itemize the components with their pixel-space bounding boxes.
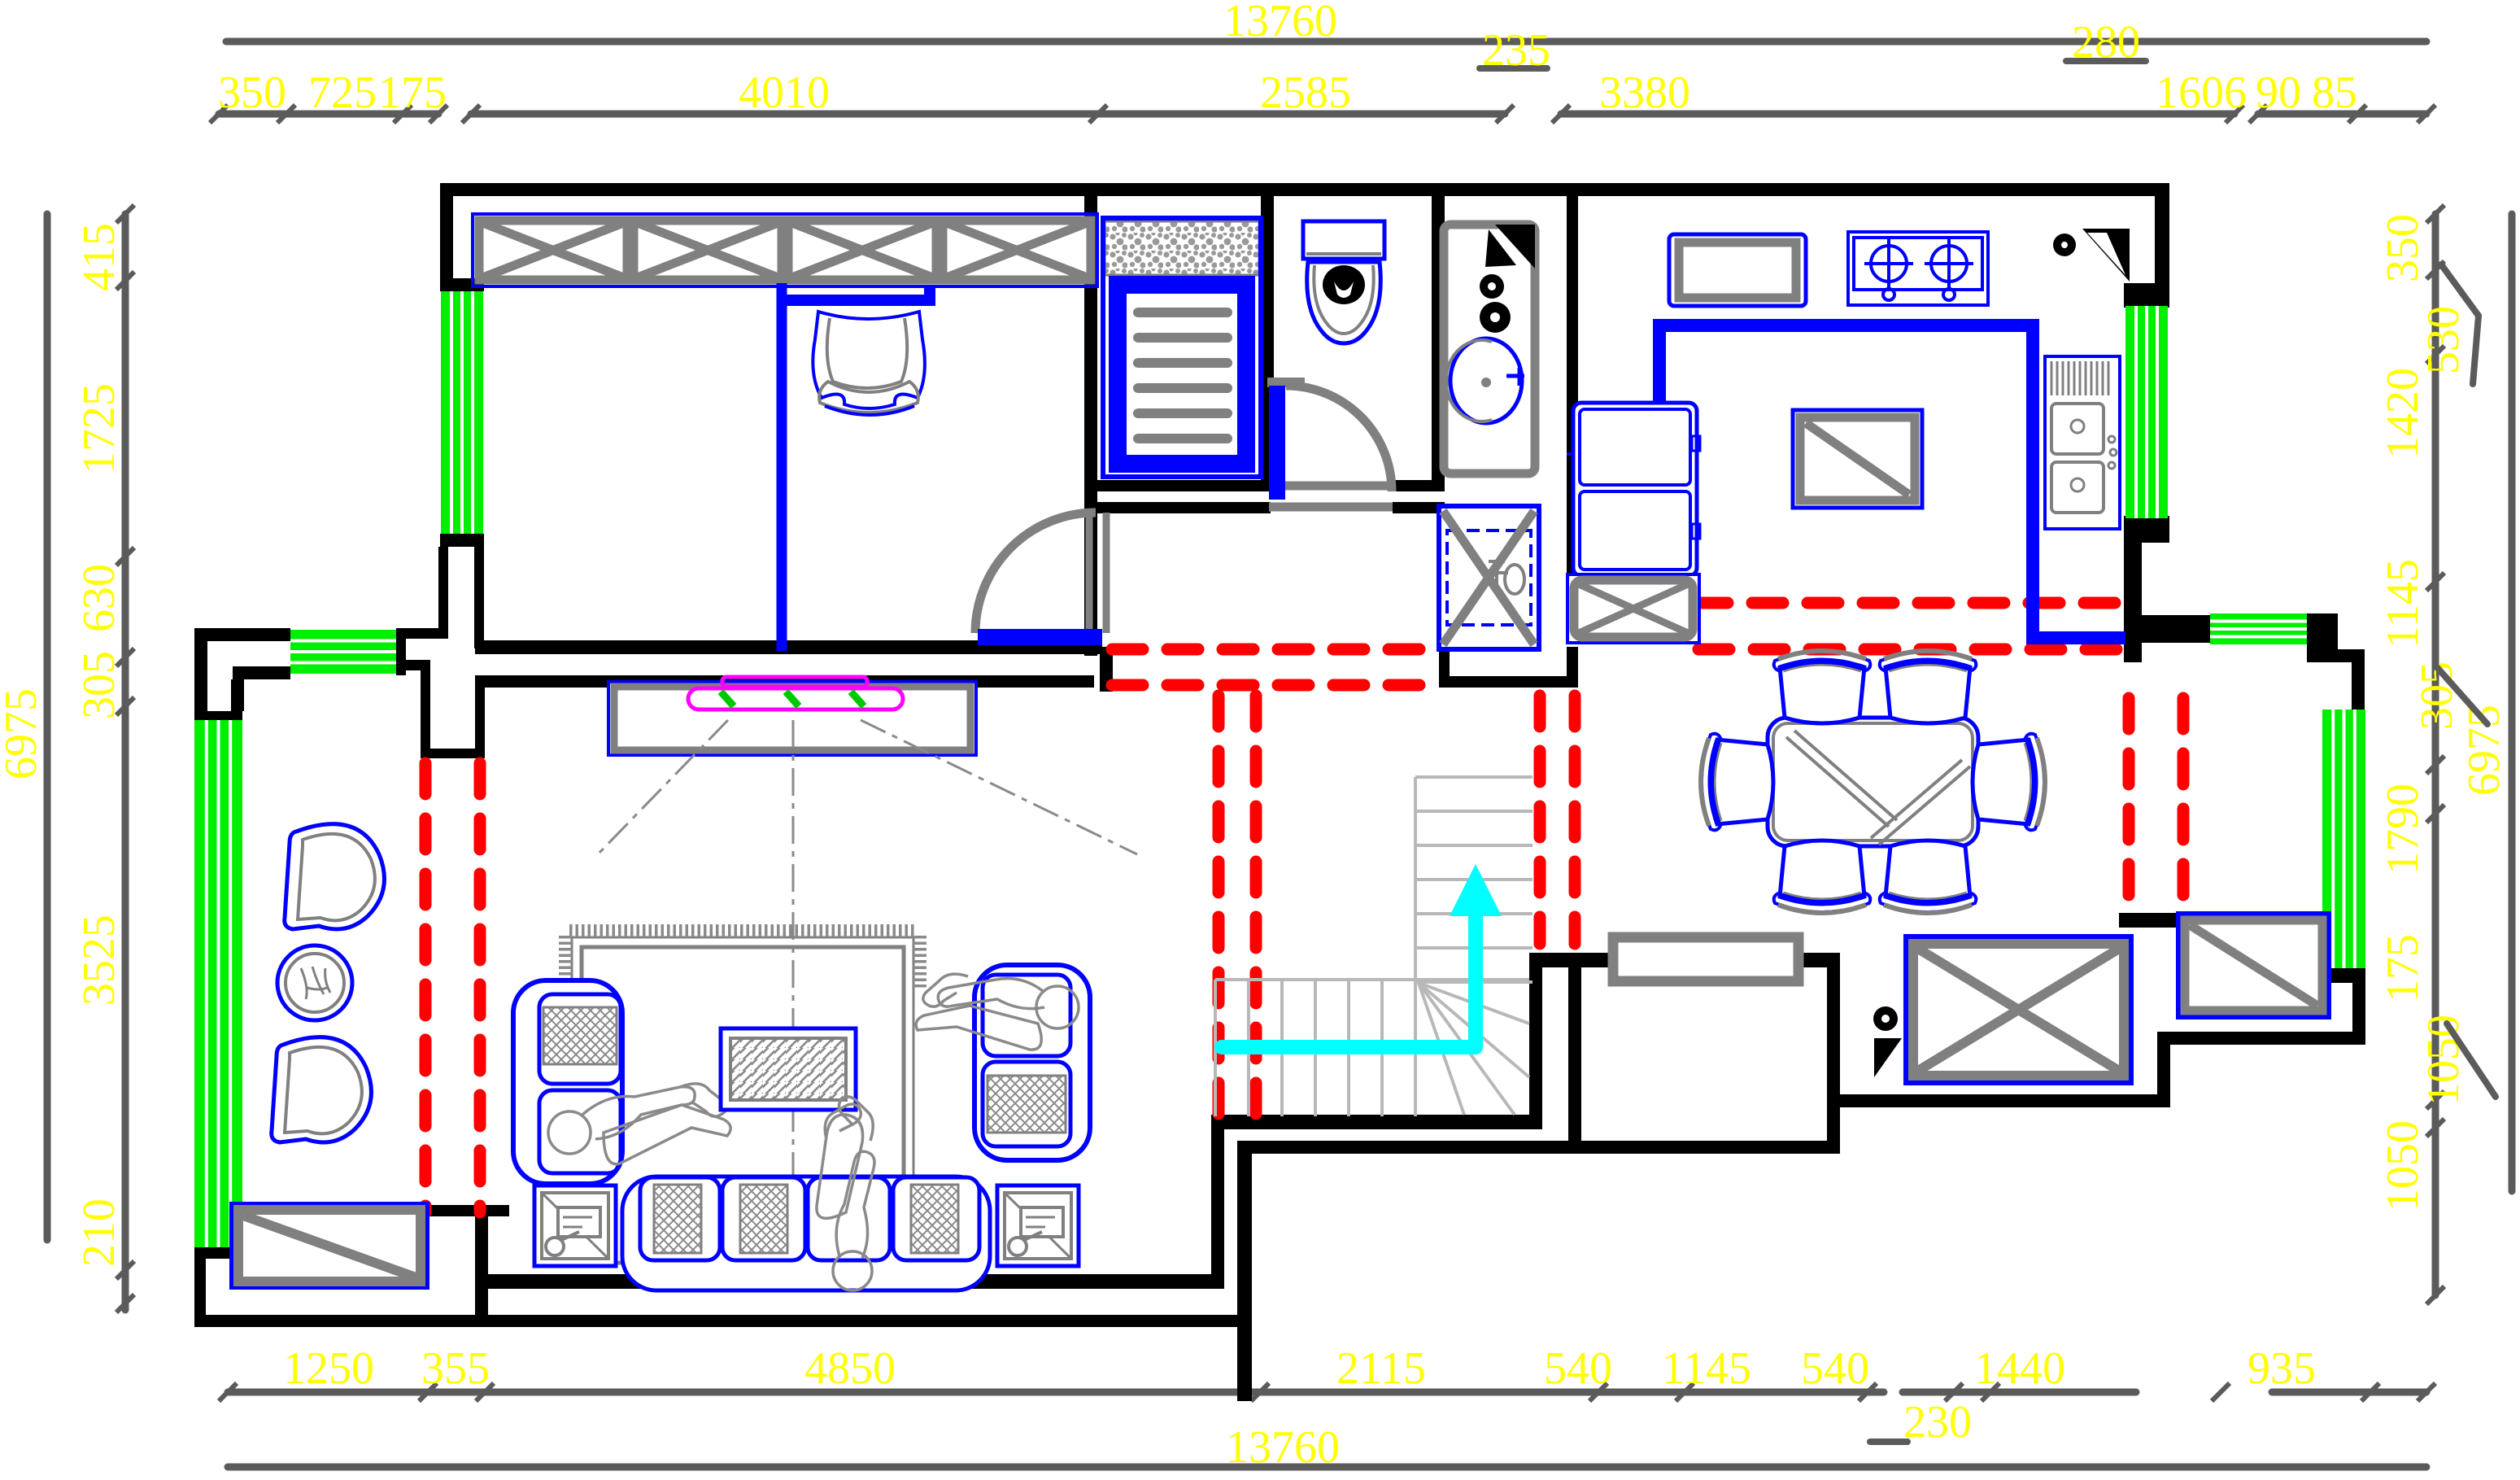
svg-text:1420: 1420	[2378, 368, 2428, 459]
svg-text:1145: 1145	[1662, 1343, 1751, 1394]
svg-text:530: 530	[2418, 306, 2469, 374]
svg-text:1606: 1606	[2156, 68, 2247, 118]
svg-text:540: 540	[1544, 1343, 1612, 1394]
svg-text:355: 355	[421, 1343, 490, 1394]
svg-text:85: 85	[2312, 68, 2357, 118]
svg-text:1145: 1145	[2378, 559, 2428, 648]
svg-text:3380: 3380	[1599, 68, 1690, 118]
svg-text:2585: 2585	[1260, 68, 1351, 118]
svg-text:1790: 1790	[2378, 784, 2428, 875]
svg-text:280: 280	[2072, 17, 2140, 68]
svg-text:1050: 1050	[2418, 1015, 2469, 1106]
svg-text:230: 230	[1903, 1397, 1972, 1447]
svg-text:4850: 4850	[804, 1343, 896, 1394]
svg-text:725: 725	[308, 68, 377, 118]
svg-text:350: 350	[218, 68, 286, 118]
svg-text:210: 210	[74, 1198, 124, 1267]
svg-text:13760: 13760	[1223, 0, 1337, 46]
svg-text:1725: 1725	[74, 383, 124, 474]
svg-text:3525: 3525	[74, 915, 124, 1006]
svg-text:1050: 1050	[2378, 1120, 2428, 1212]
svg-text:2115: 2115	[1336, 1343, 1426, 1394]
svg-text:415: 415	[74, 223, 124, 291]
svg-text:1440: 1440	[1974, 1343, 2065, 1394]
svg-text:4010: 4010	[739, 68, 830, 118]
svg-text:6975: 6975	[0, 688, 46, 779]
svg-text:13760: 13760	[1226, 1422, 1340, 1473]
svg-text:175: 175	[2378, 934, 2428, 1002]
svg-text:235: 235	[1482, 25, 1550, 76]
svg-text:90: 90	[2256, 68, 2301, 118]
svg-text:175: 175	[378, 68, 447, 118]
svg-text:305: 305	[74, 651, 124, 719]
svg-text:540: 540	[1801, 1343, 1869, 1394]
svg-text:935: 935	[2248, 1343, 2316, 1394]
svg-text:350: 350	[2378, 214, 2428, 282]
svg-text:1250: 1250	[283, 1343, 374, 1394]
svg-text:630: 630	[74, 564, 124, 632]
